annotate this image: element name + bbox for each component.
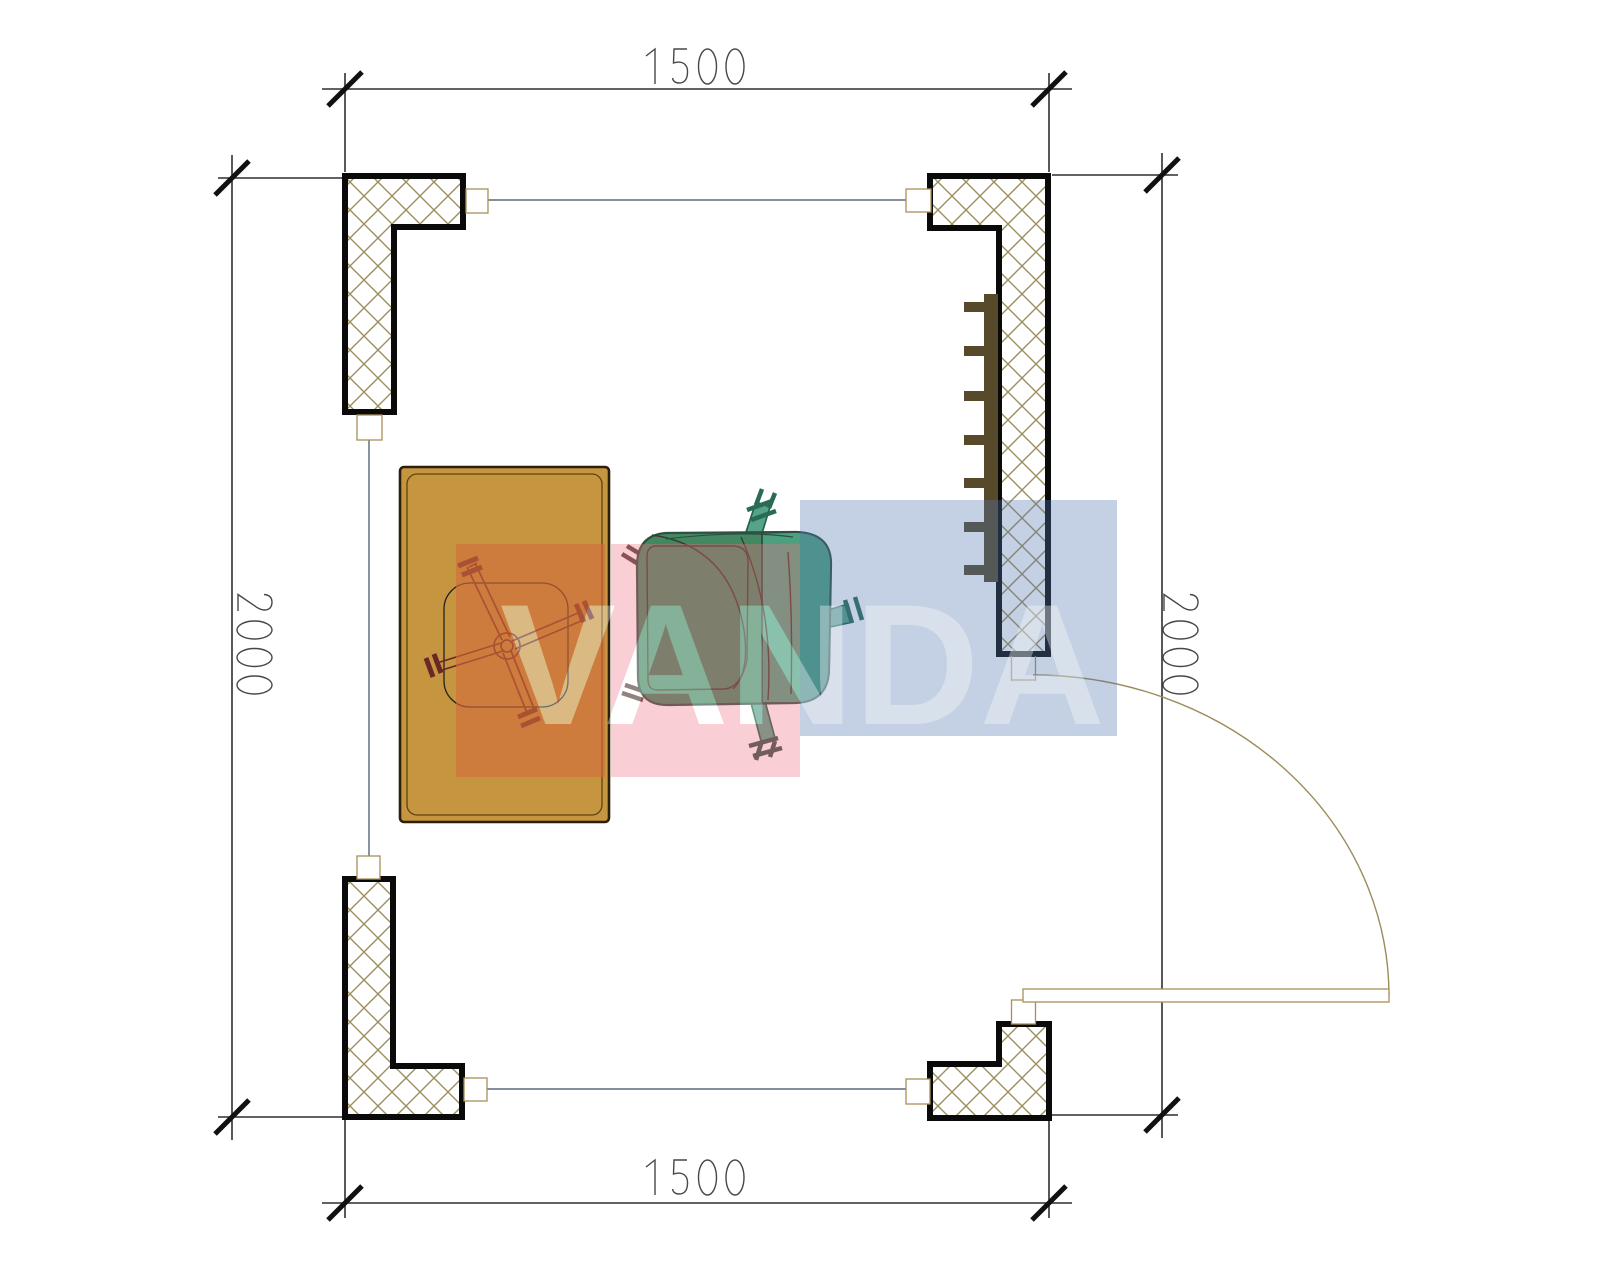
svg-text:VANDA: VANDA: [500, 569, 1105, 761]
